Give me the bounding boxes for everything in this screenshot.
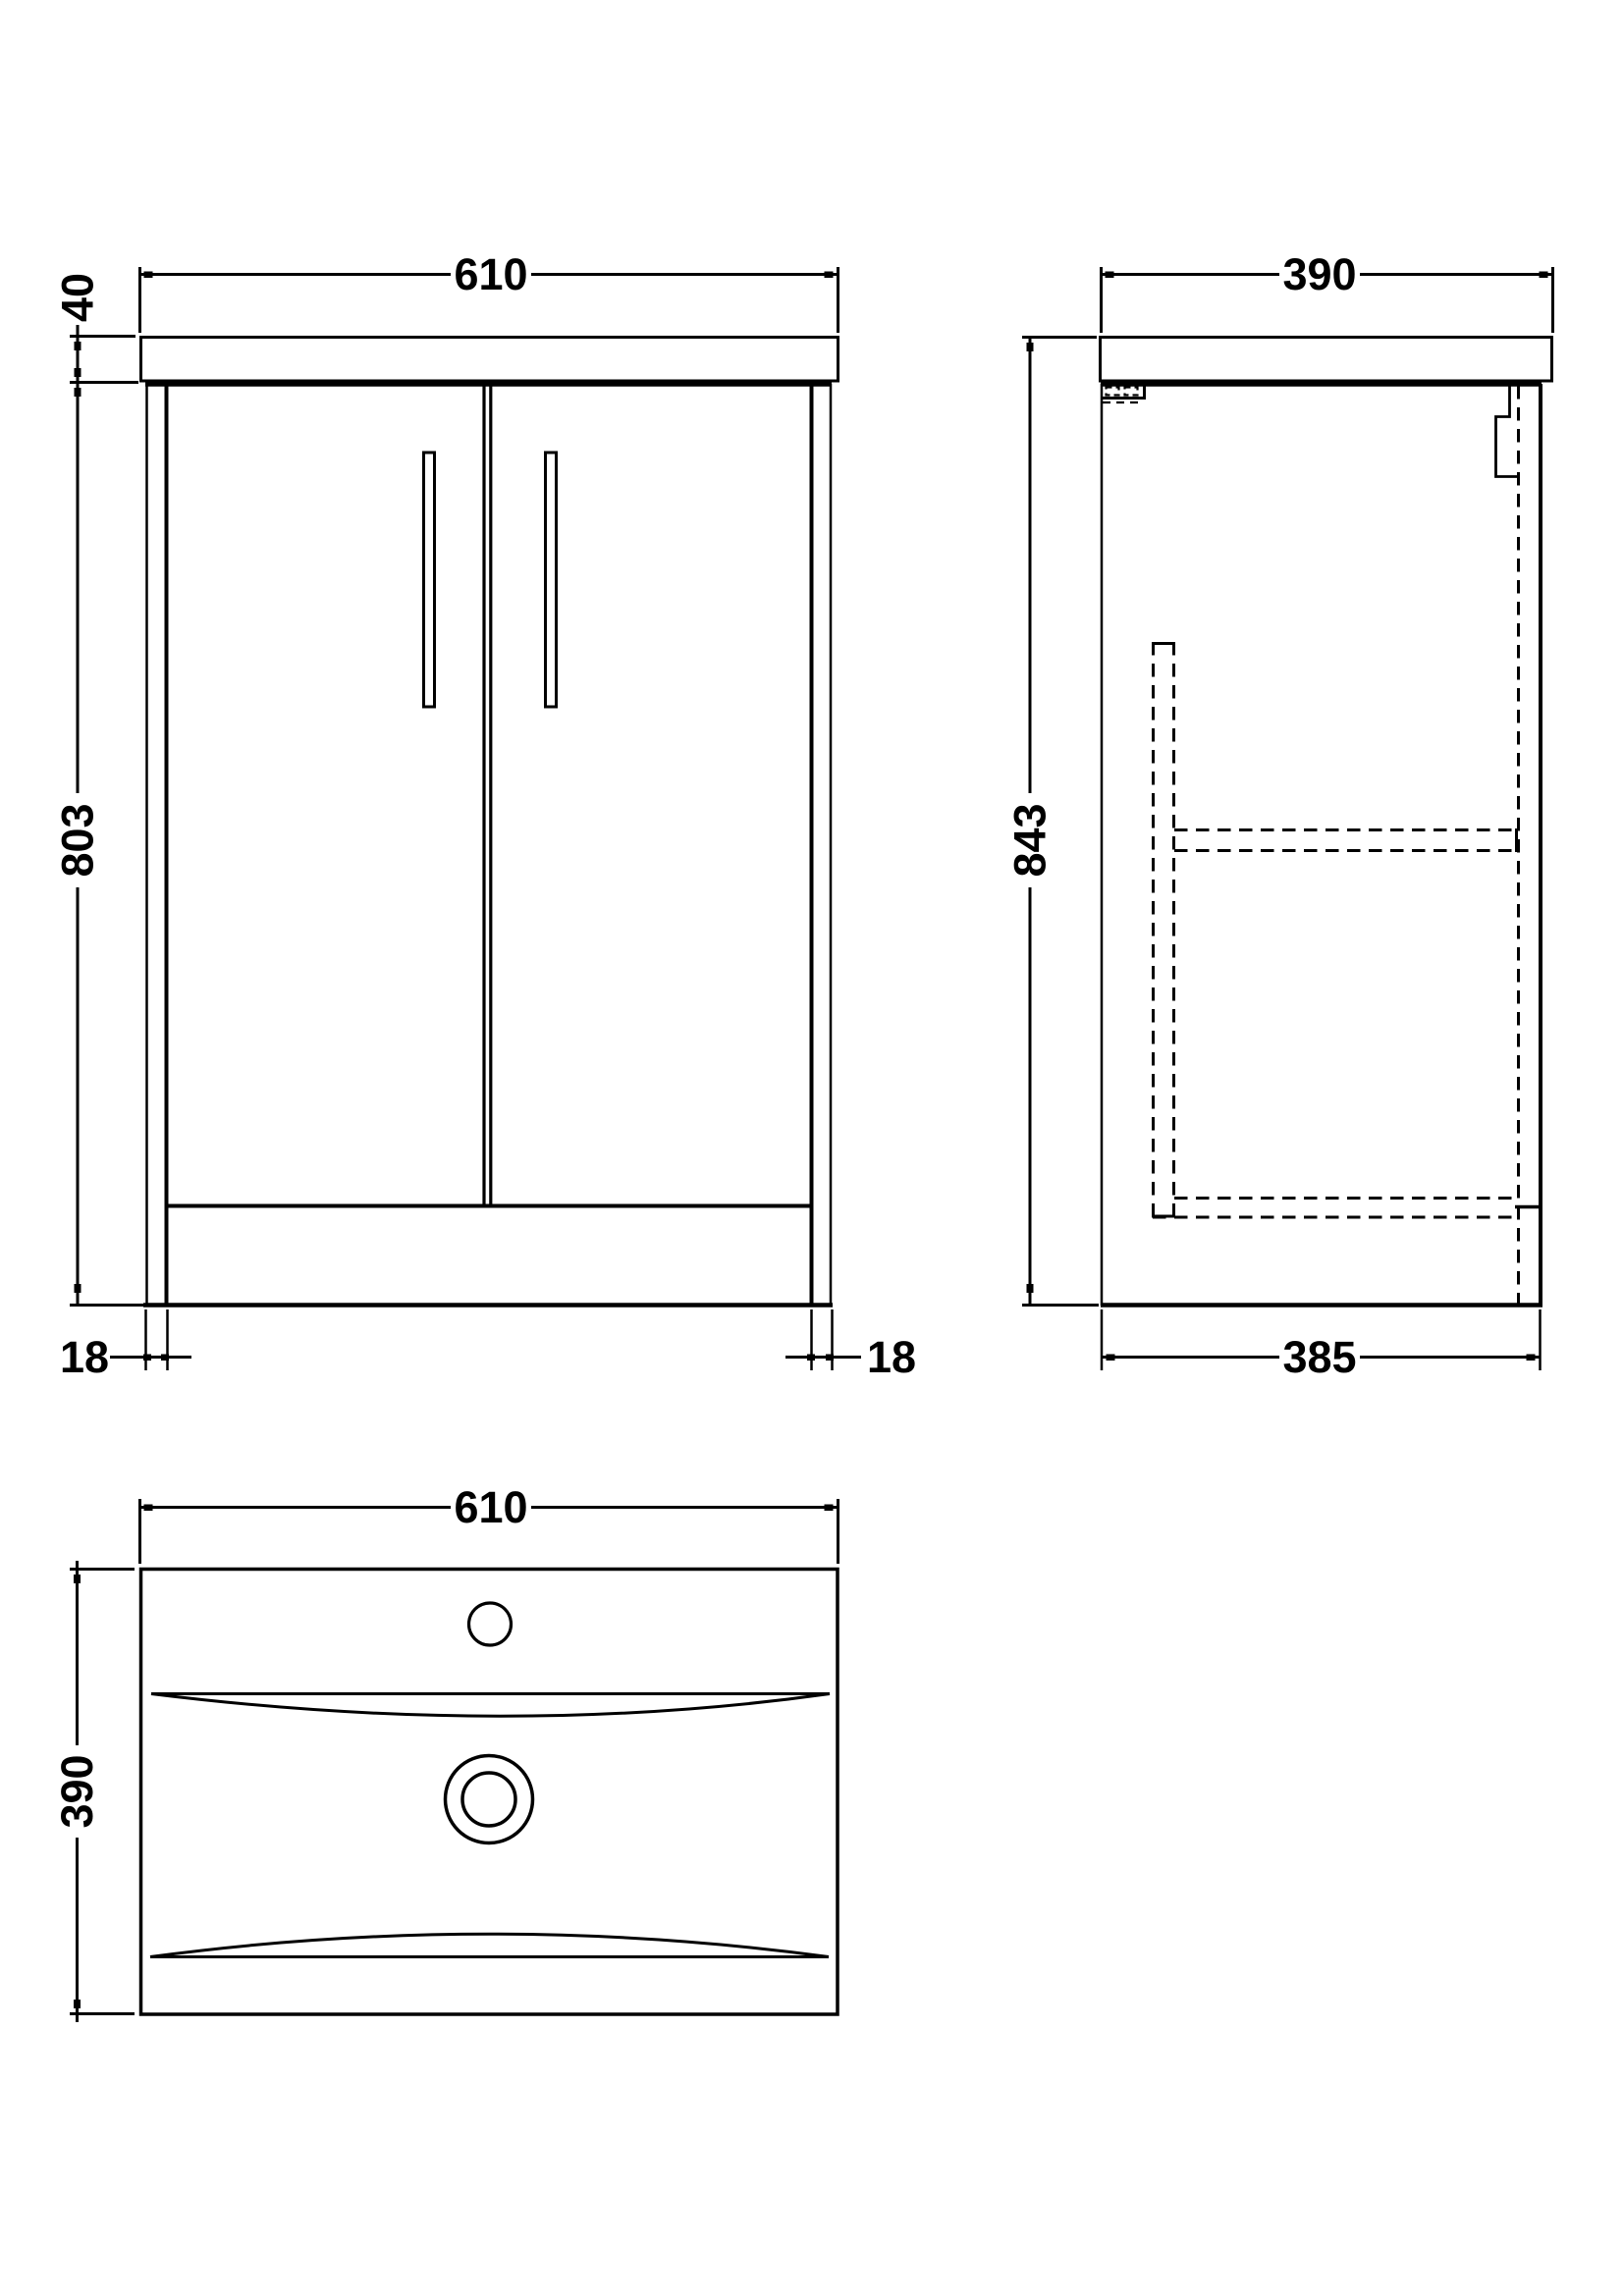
svg-text:390: 390 (1282, 249, 1356, 299)
svg-text:390: 390 (52, 1754, 102, 1828)
svg-text:610: 610 (454, 249, 527, 299)
svg-text:18: 18 (867, 1332, 916, 1382)
svg-text:610: 610 (454, 1482, 527, 1532)
svg-text:843: 843 (1005, 803, 1055, 877)
svg-text:803: 803 (53, 803, 103, 877)
svg-text:385: 385 (1282, 1332, 1356, 1382)
svg-text:40: 40 (53, 273, 103, 322)
svg-text:18: 18 (60, 1332, 109, 1382)
